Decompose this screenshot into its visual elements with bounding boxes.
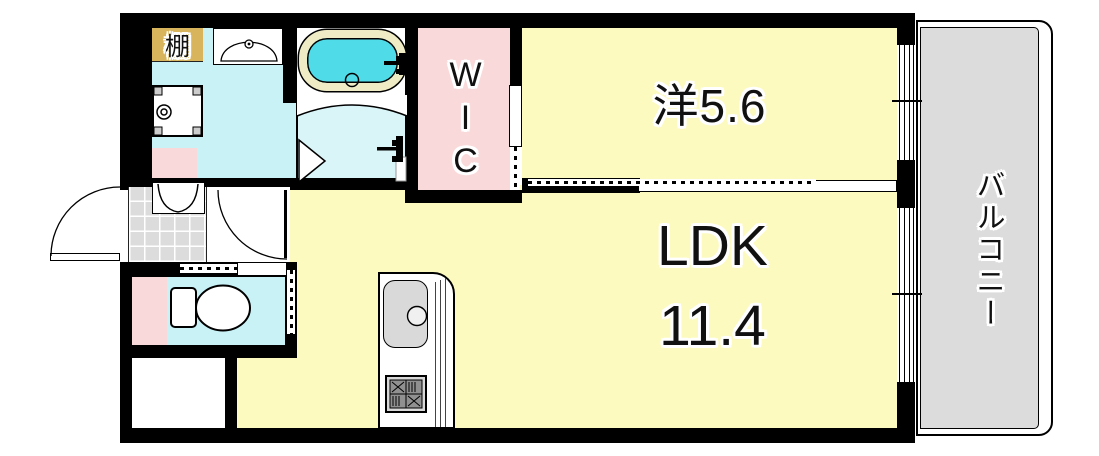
wall-left-upper	[120, 13, 152, 190]
toilet-door-track	[180, 264, 237, 273]
bathroom-floor	[298, 95, 406, 187]
kitchen-sink-icon	[383, 280, 428, 348]
window-tick	[892, 293, 922, 295]
balcony-label: バルコニー	[948, 130, 1028, 370]
washbasin-icon	[213, 28, 283, 65]
partition-door-track	[528, 179, 816, 186]
wall-bottom	[120, 428, 915, 443]
window-ldk	[899, 208, 914, 382]
ldk-size-label: 11.4	[545, 288, 880, 363]
washing-machine-pan-icon	[152, 85, 203, 137]
wall-toilet-bottom	[120, 345, 297, 358]
shoe-cabinet-icon	[152, 182, 205, 214]
wall-bath-wic	[405, 13, 418, 203]
counter-edge-line	[440, 280, 441, 427]
wall-basin-bath	[283, 13, 297, 103]
wall-right-2	[897, 160, 915, 208]
storage-room	[132, 358, 225, 428]
entrance-door-leaf	[50, 253, 120, 261]
toilet-sliding-door	[237, 262, 287, 276]
western-room-label: 洋5.6	[522, 58, 897, 148]
hall-floor	[207, 187, 290, 262]
toilet-room-pink	[132, 277, 167, 345]
ldk-label: LDK	[545, 208, 880, 283]
bath-thin-wall	[296, 100, 298, 188]
toilet-room	[167, 277, 285, 345]
counter-edge-line	[445, 278, 446, 427]
window-pane	[904, 208, 910, 382]
wall-left-lower	[120, 262, 132, 443]
floor-plan: 棚 WIC 洋5.6 LDK 11.4 バルコニー	[0, 0, 1099, 456]
ldk-label-block: LDK 11.4	[545, 208, 880, 368]
wic-label: WIC	[418, 45, 512, 195]
wall-storage-right	[225, 347, 237, 435]
counter-edge-line	[435, 282, 436, 427]
toilet-side-track	[287, 270, 295, 334]
pink-storage	[152, 148, 197, 178]
wall-right-3	[897, 382, 915, 443]
entrance-door-arc	[51, 187, 120, 256]
bathtub-icon	[299, 30, 406, 91]
window-west	[899, 45, 914, 160]
shelf-label: 棚	[152, 28, 203, 62]
wall-right-1	[897, 13, 915, 45]
interior-door-leaf	[284, 190, 287, 258]
window-pane	[904, 45, 910, 160]
